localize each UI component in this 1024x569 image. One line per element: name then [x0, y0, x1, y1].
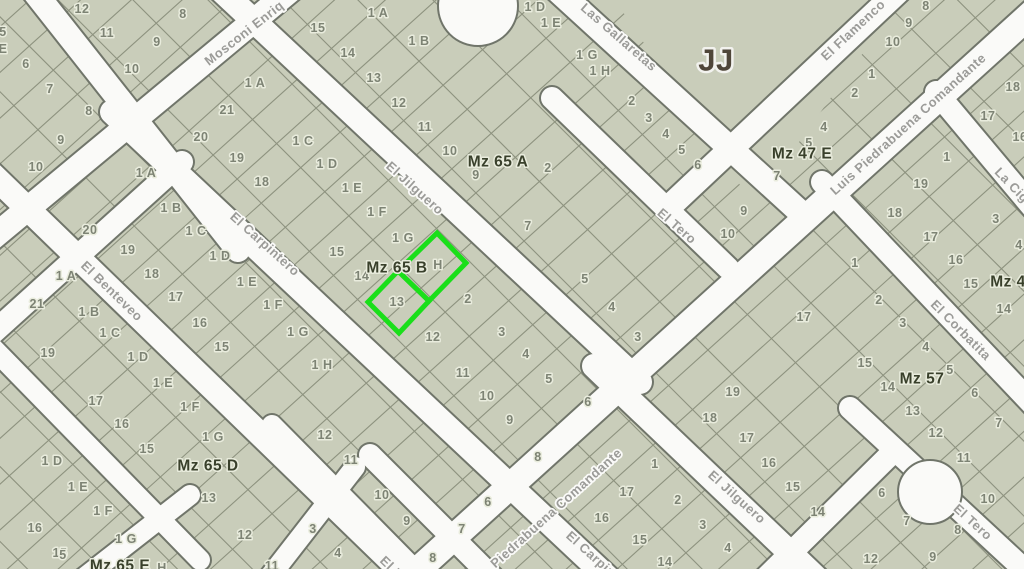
parcel-label: 17	[981, 109, 996, 123]
parcel-label: 12	[238, 528, 253, 542]
parcel-label: 11	[957, 451, 971, 465]
parcel-label: 8	[85, 104, 92, 118]
parcel-label: H	[157, 561, 167, 569]
parcel-label: 16	[762, 456, 777, 470]
parcel-label: 5	[946, 363, 953, 377]
parcel-label: 11	[265, 559, 279, 569]
parcel-label: 12	[929, 426, 944, 440]
parcel-label: 3	[309, 522, 316, 536]
parcel-label: 19	[121, 243, 136, 257]
parcel-label: 3	[992, 212, 999, 226]
parcel-label: 8	[429, 551, 436, 565]
parcel-label: 1 C	[293, 134, 314, 148]
parcel-label: 1 D	[128, 350, 149, 364]
parcel-label: 1 H	[590, 64, 611, 78]
parcel-label: 4	[608, 300, 615, 314]
parcel-label: 1 G	[576, 48, 598, 62]
parcel-label: 2	[851, 86, 858, 100]
parcel-label: 9	[905, 16, 912, 30]
parcel-label: 5	[0, 25, 7, 39]
parcel-label: 21	[30, 297, 45, 311]
parcel-label: 15	[786, 480, 801, 494]
parcel-label: 7	[524, 219, 531, 233]
parcel-label: 9	[506, 413, 513, 427]
parcel-label: 10	[886, 35, 901, 49]
parcel-label: E	[0, 42, 7, 56]
block-label: Mz 57	[900, 371, 945, 388]
parcel-label: 2	[464, 292, 471, 306]
parcel-label: 11	[418, 120, 432, 134]
parcel-label: 19	[41, 346, 56, 360]
parcel-label: 4	[922, 340, 929, 354]
parcel-label: 1 G	[202, 430, 224, 444]
parcel-label: 6	[878, 486, 885, 500]
parcel-label: 14	[658, 555, 673, 569]
parcel-label: 1 B	[161, 201, 182, 215]
parcel-label: 9	[929, 550, 936, 564]
parcel-label: 19	[230, 151, 245, 165]
parcel-label: 21	[220, 103, 235, 117]
parcel-label: 1 G	[392, 231, 414, 245]
parcel-label: 18	[255, 175, 270, 189]
parcel-label: 15	[858, 356, 873, 370]
block-label: Mz 65 D	[177, 458, 238, 475]
parcel-label: 16	[1013, 130, 1024, 144]
parcel-label: 1 D	[317, 157, 338, 171]
parcel-label: 14	[881, 380, 896, 394]
parcel-label: 1 A	[136, 166, 157, 180]
parcel-label: 10	[443, 144, 458, 158]
parcel-label: 11	[344, 453, 358, 467]
parcel-label: 16	[949, 253, 964, 267]
plaza-label: JJ	[698, 43, 733, 78]
parcel-label: 1 E	[153, 376, 173, 390]
parcel-label: 5	[678, 143, 685, 157]
parcel-label: 11	[100, 26, 114, 40]
parcel-label: 10	[125, 62, 140, 76]
parcel-label: 2	[544, 161, 551, 175]
parcel-label: 11	[456, 366, 470, 380]
parcel-label: 1 G	[115, 532, 137, 546]
block-label: Mz 65 E	[90, 558, 150, 569]
parcel-label: 3	[699, 518, 706, 532]
parcel-label: 1	[851, 256, 858, 270]
parcel-label: 4	[662, 127, 669, 141]
parcel-label: 1 A	[56, 269, 77, 283]
parcel-label: 1 D	[525, 0, 546, 14]
parcel-label: 1 B	[79, 305, 100, 319]
parcel-label: 1 A	[368, 6, 389, 20]
parcel-label: 6	[22, 57, 29, 71]
parcel-label: 15	[311, 21, 326, 35]
parcel-label: 10	[29, 160, 44, 174]
parcel-label: 17	[924, 230, 939, 244]
block-label: Mz 47 E	[772, 146, 832, 163]
parcel-label: 9	[403, 514, 410, 528]
parcel-label: 10	[721, 227, 736, 241]
parcel-label: 8	[179, 7, 186, 21]
parcel-label: 7	[995, 416, 1002, 430]
parcel-label: 10	[480, 389, 495, 403]
parcel-label: 6	[584, 395, 591, 409]
parcel-label: 7	[903, 514, 910, 528]
parcel-label: 1	[651, 457, 658, 471]
parcel-label: 7	[46, 82, 53, 96]
parcel-label: 8	[922, 0, 929, 13]
parcel-label: 14	[811, 505, 826, 519]
parcel-label: 20	[83, 223, 98, 237]
map-svg[interactable]: 128119106789105E1 A212019181 C1 D1 E1 A1…	[0, 0, 1024, 569]
parcel-label: 9	[57, 133, 64, 147]
parcel-label: 12	[318, 428, 333, 442]
parcel-label: 8	[534, 450, 541, 464]
parcel-label: 14	[997, 302, 1012, 316]
parcel-label: 1 F	[367, 205, 387, 219]
parcel-label: 4	[334, 546, 341, 560]
parcel-label: 1 H	[312, 358, 333, 372]
parcel-label: 4	[820, 120, 827, 134]
parcel-label: 5	[59, 548, 66, 562]
parcel-label: 20	[194, 130, 209, 144]
parcel-label: 7	[773, 169, 780, 183]
parcel-label: 10	[981, 492, 996, 506]
parcel-label: 9	[153, 35, 160, 49]
parcel-label: 12	[864, 552, 879, 566]
parcel-label: 1 F	[180, 400, 200, 414]
parcel-label: 1 B	[409, 34, 430, 48]
parcel-label: 17	[740, 431, 755, 445]
parcel-label: 1 F	[93, 504, 113, 518]
parcel-label: 17	[620, 485, 635, 499]
parcel-label: 1 F	[263, 298, 283, 312]
parcel-label: 17	[169, 290, 184, 304]
parcel-label: 1 D	[210, 249, 231, 263]
parcel-label: 14	[341, 46, 356, 60]
parcel-label: 16	[193, 316, 208, 330]
parcel-label: 15	[964, 277, 979, 291]
parcel-label: 1 E	[342, 181, 362, 195]
parcel-label: 1 E	[237, 275, 257, 289]
parcel-label: 6	[484, 495, 491, 509]
parcel-label: 1 G	[287, 325, 309, 339]
parcel-label: 4	[724, 541, 731, 555]
parcel-label: 17	[797, 310, 812, 324]
parcel-label: 15	[633, 533, 648, 547]
parcel-label: 3	[634, 330, 641, 344]
parcel-label: 5	[581, 272, 588, 286]
parcel-label: 2	[628, 94, 635, 108]
parcel-label: 13	[390, 295, 405, 309]
parcel-label: 1 A	[245, 76, 266, 90]
parcel-label: 16	[28, 521, 43, 535]
parcel-label: 6	[971, 386, 978, 400]
parcel-label: 9	[740, 204, 747, 218]
parcel-label: 10	[375, 488, 390, 502]
parcel-label: 1 C	[100, 326, 121, 340]
parcel-label: 13	[367, 71, 382, 85]
parcel-label: 8	[954, 523, 961, 537]
parcel-label: 7	[458, 522, 465, 536]
parcel-label: 12	[392, 96, 407, 110]
block-label: Mz 65 A	[468, 154, 529, 171]
block-label: Mz 65 B	[366, 260, 427, 277]
parcel-label: 18	[1006, 80, 1021, 94]
parcel-label: 1 E	[68, 480, 88, 494]
parcel-label: 16	[115, 417, 130, 431]
parcel-label: 19	[914, 177, 929, 191]
parcel-label: 6	[694, 158, 701, 172]
parcel-label: 1	[868, 67, 875, 81]
parcel-label: 3	[498, 325, 505, 339]
parcel-label: 1 C	[186, 224, 207, 238]
parcel-label: 15	[215, 340, 230, 354]
parcel-label: 19	[726, 385, 741, 399]
parcel-label: 13	[906, 404, 921, 418]
parcel-label: 12	[75, 2, 90, 16]
parcel-label: 3	[899, 316, 906, 330]
parcel-label: 2	[875, 293, 882, 307]
parcel-label: 2	[674, 493, 681, 507]
parcel-label: 13	[202, 491, 217, 505]
block-label: Mz 4	[990, 274, 1024, 291]
parcel-label: 3	[645, 111, 652, 125]
parcel-label: 16	[595, 511, 610, 525]
parcel-label: 15	[330, 245, 345, 259]
parcel-label: 18	[703, 411, 718, 425]
parcel-label: 17	[89, 394, 104, 408]
parcel-label: 1 E	[541, 16, 561, 30]
parcel-label: 1	[943, 150, 950, 164]
parcel-label: 18	[888, 206, 903, 220]
parcel-label: 12	[426, 330, 441, 344]
parcel-label: 15	[140, 442, 155, 456]
cadastral-map[interactable]: 128119106789105E1 A212019181 C1 D1 E1 A1…	[0, 0, 1024, 569]
parcel-label: 4	[1015, 238, 1022, 252]
parcel-label: 1 D	[42, 454, 63, 468]
parcel-label: 18	[145, 267, 160, 281]
parcel-label: 5	[545, 372, 552, 386]
parcel-label: 4	[522, 347, 529, 361]
parcel-label: H	[433, 258, 443, 272]
